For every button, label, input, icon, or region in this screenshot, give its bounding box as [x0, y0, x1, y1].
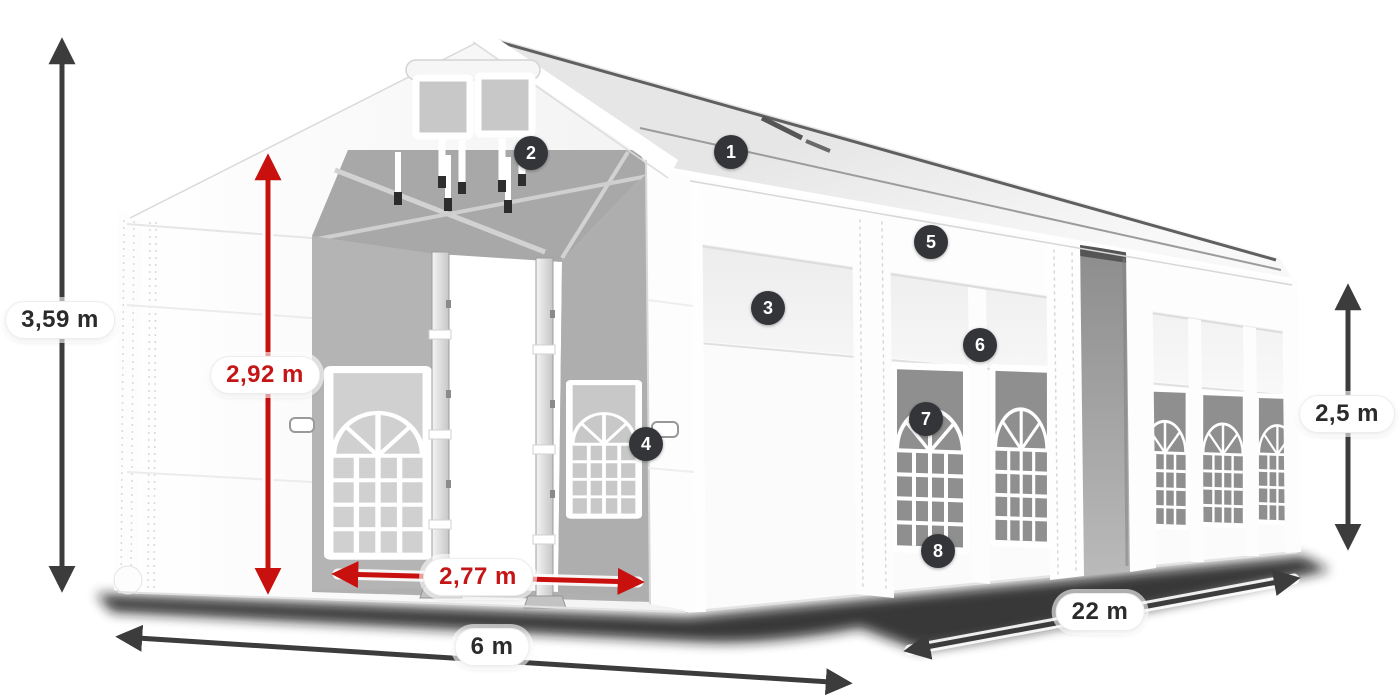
dimension-label-width: 6 m	[455, 628, 530, 666]
feature-marker-6[interactable]: 6	[963, 328, 997, 362]
feature-marker-7[interactable]: 7	[909, 402, 943, 436]
dimension-label-entrance-width: 2,77 m	[423, 558, 533, 596]
feature-marker-1[interactable]: 1	[714, 135, 748, 169]
feature-marker-5[interactable]: 5	[914, 225, 948, 259]
dimension-label-entrance-height: 2,92 m	[210, 356, 320, 394]
right-door-panel	[646, 160, 696, 612]
side-window-1	[890, 362, 970, 555]
dimension-label-side-height: 2,5 m	[1299, 395, 1395, 433]
feature-marker-2[interactable]: 2	[514, 136, 548, 170]
dimension-label-total-height: 3,59 m	[5, 301, 115, 339]
dimension-label-length: 22 m	[1056, 593, 1145, 631]
entrance-opening	[312, 150, 650, 608]
tent-illustration	[0, 0, 1400, 700]
feature-marker-3[interactable]: 3	[751, 291, 785, 325]
front-facade	[94, 24, 696, 612]
side-window-2	[990, 364, 1052, 549]
interior-window-left	[324, 366, 432, 560]
product-diagram: 3,59 m 2,92 m 2,77 m 6 m 22 m 2,5 m 1 2 …	[0, 0, 1400, 700]
feature-marker-4[interactable]: 4	[629, 427, 663, 461]
side-wall	[676, 170, 1301, 612]
feature-marker-8[interactable]: 8	[921, 534, 955, 568]
door-handle-left	[290, 418, 314, 432]
side-window-4	[1199, 390, 1247, 528]
open-side-entrance	[1080, 245, 1130, 576]
